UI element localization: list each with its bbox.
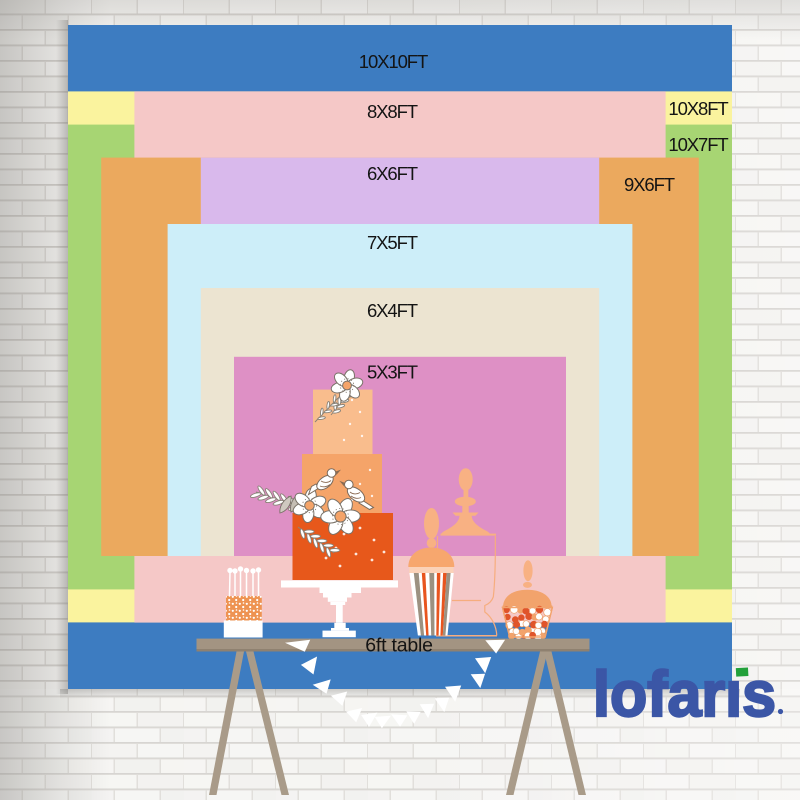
- svg-text:9X6FT: 9X6FT: [624, 174, 675, 195]
- svg-text:6X4FT: 6X4FT: [367, 300, 418, 321]
- svg-text:6ft table: 6ft table: [365, 635, 433, 657]
- svg-text:8X8FT: 8X8FT: [367, 101, 418, 122]
- svg-text:10X7FT: 10X7FT: [668, 134, 728, 155]
- svg-text:6X6FT: 6X6FT: [367, 163, 418, 184]
- svg-text:10X10FT: 10X10FT: [359, 51, 428, 72]
- svg-text:10X8FT: 10X8FT: [668, 98, 728, 119]
- svg-text:lofarıs: lofarıs: [593, 658, 776, 730]
- svg-text:5X3FT: 5X3FT: [367, 362, 418, 383]
- svg-text:7X5FT: 7X5FT: [367, 232, 418, 253]
